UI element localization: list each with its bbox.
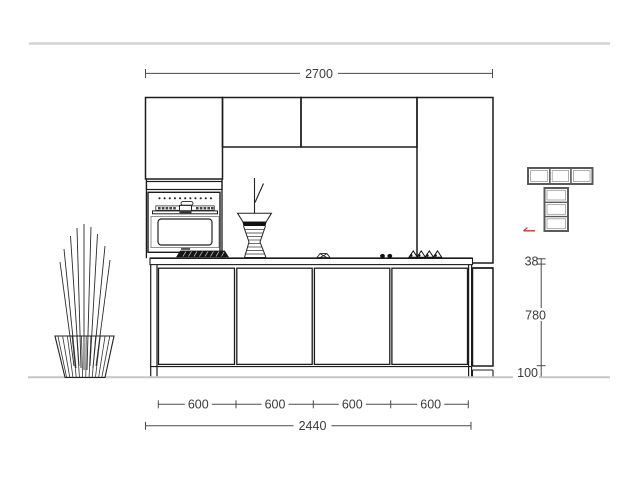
base-door-2	[237, 268, 312, 364]
wall-unit-detail-plan	[528, 168, 593, 184]
wall-cabinet-left	[146, 98, 223, 180]
base-door-3	[314, 268, 389, 364]
dim-label-run-length: 2440	[299, 419, 327, 433]
wall-cabinet-row	[146, 98, 418, 180]
dim-right-chain: 38 780 100	[513, 255, 547, 381]
decor-vase	[238, 178, 272, 258]
oven-display-pill	[181, 202, 193, 206]
dim-unit-widths: 600 600 600 600	[158, 398, 468, 412]
wall-cabinet-mid-right	[301, 98, 417, 148]
dim-label-carcass-height: 780	[525, 309, 546, 323]
base-side-panel-left	[151, 265, 157, 377]
dim-overall-width: 2700	[146, 67, 493, 82]
dim-label-worktop-thickness: 38	[525, 255, 539, 269]
hob-fittings	[317, 251, 442, 258]
base-doors	[159, 268, 468, 364]
vase-band	[243, 222, 267, 226]
dim-label-overall-width: 2700	[305, 67, 333, 81]
counter-object	[317, 254, 330, 258]
hob-knob-round-2	[387, 254, 392, 258]
wall-unit-detail	[524, 168, 593, 231]
wall-cabinet-mid-left	[223, 98, 302, 148]
dim-label-unit-width-3: 600	[342, 398, 363, 412]
wall-unit-detail-side	[545, 188, 569, 231]
elevation-svg: 2700 38 780 100 600 600 600 600	[0, 0, 640, 480]
hob-knob-round-1	[380, 254, 385, 258]
oven-filler-panel	[147, 182, 223, 190]
oven-display-window	[180, 205, 192, 210]
kitchen-elevation-drawing: 2700 38 780 100 600 600 600 600	[0, 0, 640, 480]
tall-cabinet-lower-door	[473, 268, 494, 366]
dim-run-length: 2440	[146, 419, 472, 433]
oven-button-strip	[156, 205, 215, 210]
oven-logo-badge	[181, 248, 190, 250]
oven-tower	[146, 179, 229, 258]
tall-cabinet-upper-door	[417, 98, 493, 264]
dim-label-unit-width-2: 600	[265, 398, 286, 412]
red-revision-mark	[524, 228, 536, 231]
dim-label-unit-width-1: 600	[188, 398, 209, 412]
base-door-4	[392, 268, 468, 364]
worktop	[150, 258, 473, 264]
plant	[55, 224, 114, 378]
vase-branch	[255, 184, 264, 203]
dim-label-unit-width-4: 600	[420, 398, 441, 412]
oven-handle	[153, 211, 218, 214]
base-side-panel-right	[469, 265, 472, 377]
oven-vent-grille	[176, 251, 229, 258]
base-cabinet-run	[151, 265, 472, 377]
vase-top	[238, 213, 272, 222]
vase-ribs	[245, 230, 265, 255]
base-door-1	[159, 268, 235, 364]
vase-body	[244, 226, 267, 258]
hob-knob-triangles	[409, 251, 442, 257]
plant-pot	[55, 336, 114, 378]
dim-label-plinth-height: 100	[517, 366, 538, 380]
